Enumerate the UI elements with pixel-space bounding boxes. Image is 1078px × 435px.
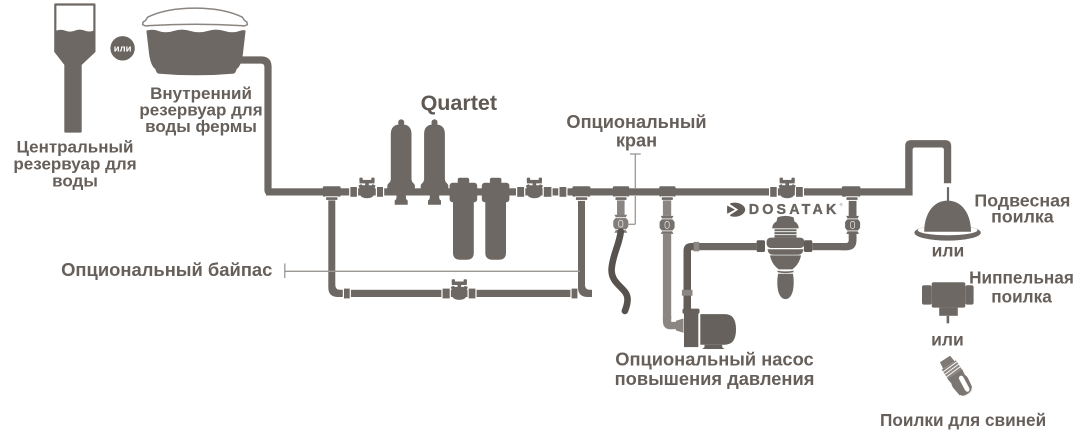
svg-text:Ниппельная: Ниппельная	[969, 268, 1074, 288]
svg-text:Поилки для свиней: Поилки для свиней	[880, 410, 1046, 430]
svg-text:или: или	[114, 44, 132, 55]
svg-text:Опциональный насос: Опциональный насос	[615, 349, 813, 370]
svg-text:воды фермы: воды фермы	[145, 117, 257, 136]
svg-text:поилка: поилка	[991, 287, 1052, 307]
svg-text:Опциональный: Опциональный	[566, 112, 706, 132]
svg-text:Quartet: Quartet	[421, 91, 497, 115]
svg-text:DOSATAK: DOSATAK	[749, 202, 840, 218]
svg-text:®: ®	[840, 202, 844, 208]
svg-text:Опциональный байпас: Опциональный байпас	[61, 259, 272, 280]
svg-text:поилка: поилка	[991, 207, 1054, 227]
svg-text:или: или	[931, 330, 964, 350]
svg-text:воды: воды	[52, 172, 98, 191]
svg-text:кран: кран	[616, 131, 657, 151]
svg-text:повышения давления: повышения давления	[615, 368, 815, 389]
svg-text:или: или	[932, 241, 965, 261]
